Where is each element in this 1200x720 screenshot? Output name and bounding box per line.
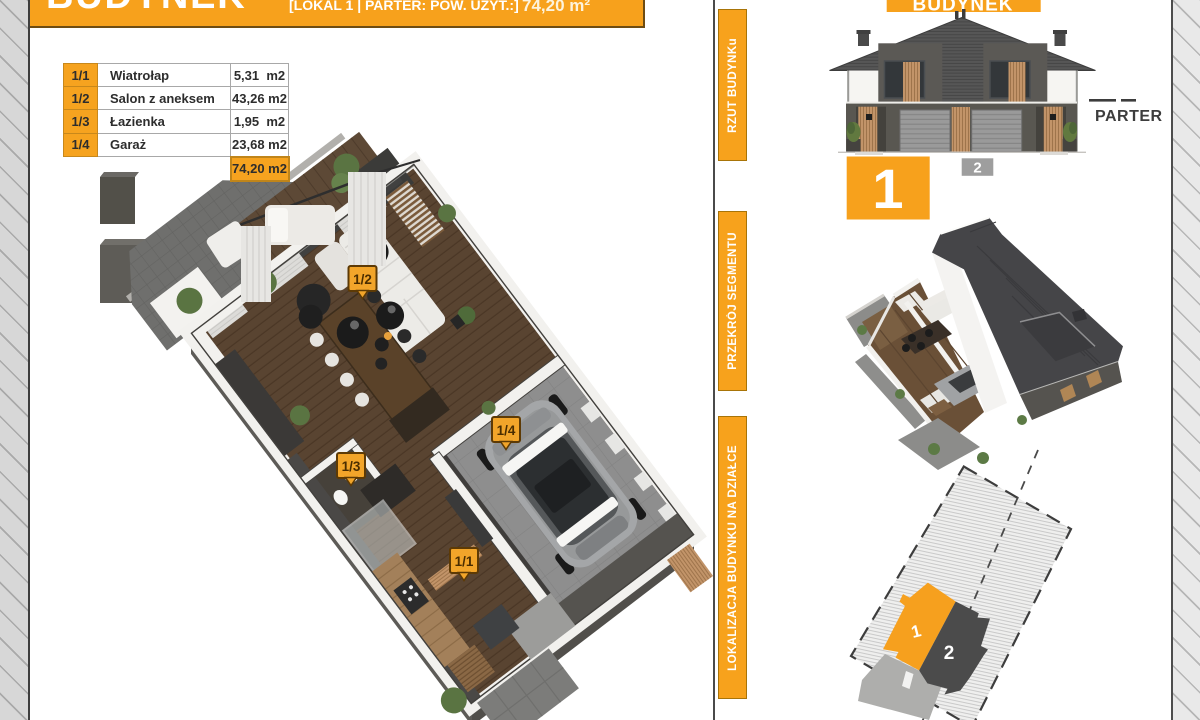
svg-text:2: 2: [944, 643, 955, 664]
svg-text:1: 1: [872, 157, 903, 220]
svg-text:1/4: 1/4: [497, 423, 516, 438]
svg-text:2: 2: [973, 160, 981, 177]
svg-text:1/2: 1/2: [353, 272, 372, 287]
svg-text:PARTER: PARTER: [1095, 108, 1163, 125]
svg-text:1/3: 1/3: [342, 459, 361, 474]
svg-text:1/1: 1/1: [455, 554, 474, 569]
